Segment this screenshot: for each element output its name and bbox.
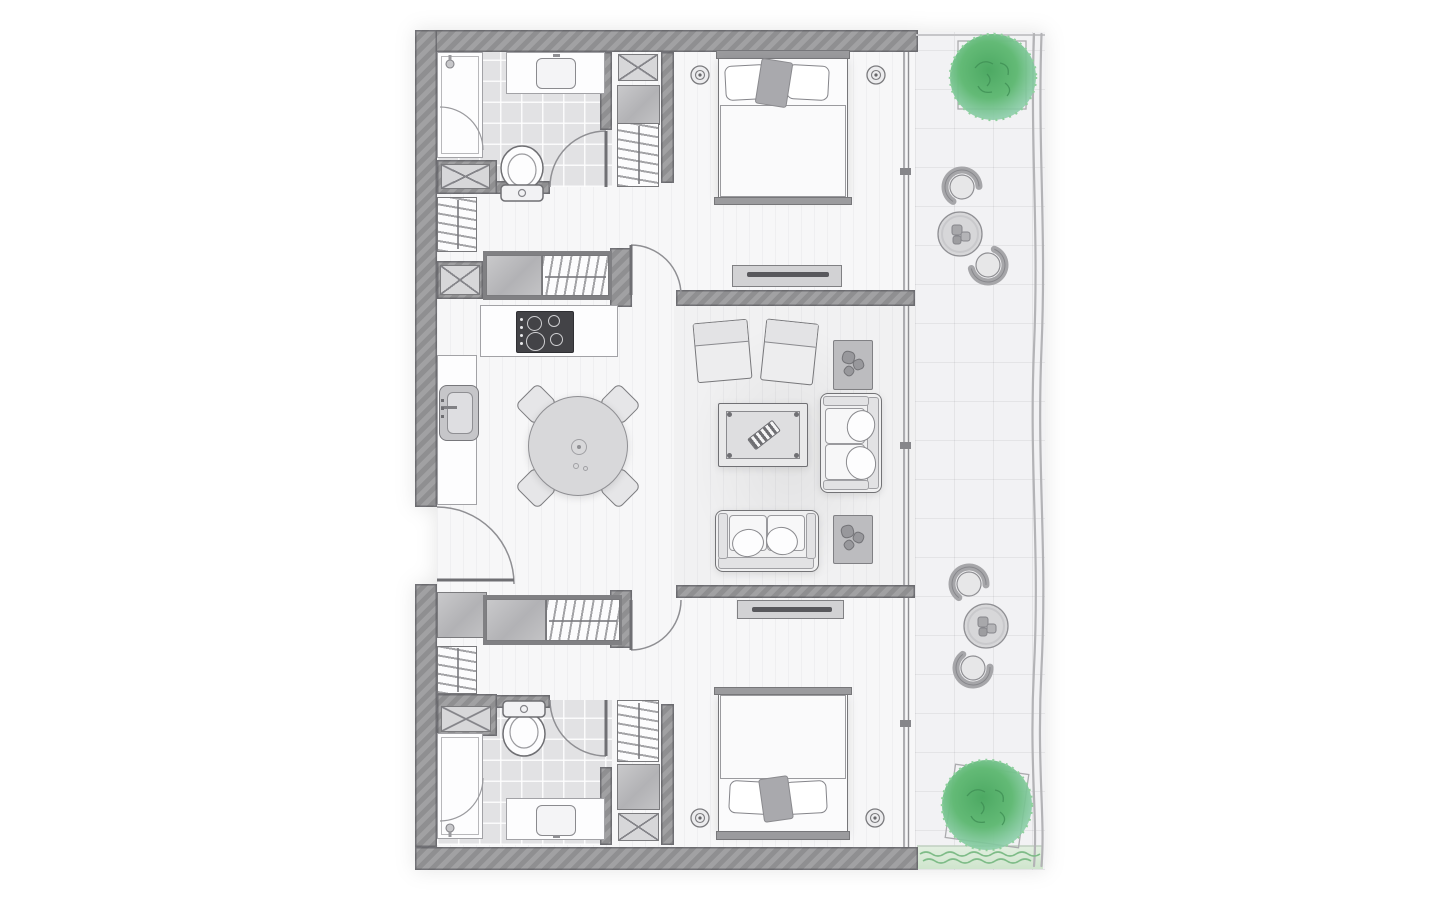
wall-top bbox=[415, 30, 918, 52]
shaft-xbox-closet-strip-2 bbox=[618, 813, 659, 841]
cooktop-burner-2 bbox=[548, 315, 560, 327]
mirror-cabinet-hall-2 bbox=[437, 592, 487, 638]
armchair-2 bbox=[760, 318, 819, 385]
vanity-1 bbox=[506, 52, 605, 94]
shaft-xbox-bath1 bbox=[441, 164, 490, 189]
wall-left-lower bbox=[415, 584, 437, 847]
hall-closet-1-hanging bbox=[542, 255, 609, 296]
bed-2 bbox=[718, 694, 848, 833]
coffee-table bbox=[718, 403, 808, 467]
cooktop-burner-1 bbox=[527, 316, 542, 331]
cooktop bbox=[516, 311, 574, 353]
sink-faucet-knobs bbox=[441, 398, 444, 418]
kitchen-sink bbox=[439, 385, 479, 441]
tv-2 bbox=[752, 607, 832, 612]
wall-door-stub-bedroom-1 bbox=[610, 248, 632, 307]
floor-plan-canvas bbox=[415, 28, 1052, 875]
balcony-grass-strip bbox=[917, 846, 1043, 869]
shower-2 bbox=[437, 733, 483, 839]
closet-cabinet-strip-2 bbox=[617, 764, 660, 810]
wall-left-upper bbox=[415, 30, 437, 507]
sofa-horizontal bbox=[715, 510, 819, 572]
bed-1 bbox=[718, 58, 848, 198]
bed-2-duvet bbox=[720, 695, 846, 779]
bed-2-throw-blanket bbox=[758, 775, 794, 823]
bed-1-throw-blanket bbox=[755, 58, 794, 108]
cooktop-burner-4 bbox=[550, 333, 563, 346]
closet-cabinet-strip-1 bbox=[617, 85, 660, 125]
shower-1 bbox=[437, 52, 483, 158]
plant-side-table-2 bbox=[833, 515, 873, 564]
hall-closet-2-sliding-panel bbox=[486, 599, 546, 641]
cooktop-knob bbox=[520, 318, 523, 321]
vanity-1-faucet bbox=[553, 54, 560, 57]
wardrobe-hall-1 bbox=[437, 197, 477, 252]
wall-bedroom-2-west bbox=[661, 704, 674, 845]
closet-hanging-strip-1 bbox=[617, 123, 659, 187]
tv-console-2 bbox=[737, 600, 844, 619]
tv-1 bbox=[747, 272, 829, 277]
bed-2-headboard bbox=[716, 831, 850, 840]
cooktop-knob bbox=[520, 342, 523, 345]
plant-side-table-1 bbox=[833, 340, 873, 390]
wall-bathroom-2-top bbox=[495, 695, 550, 708]
bed-1-duvet bbox=[720, 105, 846, 197]
wall-bedroom-1-west bbox=[661, 52, 674, 183]
dining-table bbox=[528, 396, 628, 496]
wall-bathroom-1-bottom bbox=[495, 181, 550, 194]
closet-hanging-strip-2 bbox=[617, 700, 659, 762]
wall-divider-bedroom-2 bbox=[676, 585, 915, 598]
shaft-xbox-closet-strip-1 bbox=[618, 54, 658, 81]
vanity-2 bbox=[506, 798, 605, 840]
shaft-xbox-hall1 bbox=[440, 265, 480, 295]
bed-1-footboard bbox=[714, 197, 852, 205]
balcony-floor bbox=[915, 32, 1045, 870]
wall-divider-bedroom-1 bbox=[676, 290, 915, 306]
sofa-vertical bbox=[820, 393, 882, 493]
cooktop-knob bbox=[520, 334, 523, 337]
shaft-xbox-bath2 bbox=[441, 706, 491, 732]
armchair-1 bbox=[692, 319, 752, 384]
cooktop-knob bbox=[520, 326, 523, 329]
vanity-1-basin bbox=[536, 58, 576, 89]
cooktop-burner-3 bbox=[526, 332, 545, 351]
wardrobe-hall-2 bbox=[437, 646, 477, 694]
vanity-2-faucet bbox=[553, 835, 560, 838]
bed-1-pillow-right bbox=[786, 64, 830, 101]
bed-2-footboard bbox=[714, 687, 852, 695]
vanity-2-basin bbox=[536, 805, 576, 836]
wall-bottom bbox=[415, 847, 918, 870]
hall-closet-1-sliding-panel bbox=[486, 255, 542, 296]
tv-console-1 bbox=[732, 265, 842, 287]
hall-closet-2-hanging bbox=[546, 599, 620, 641]
